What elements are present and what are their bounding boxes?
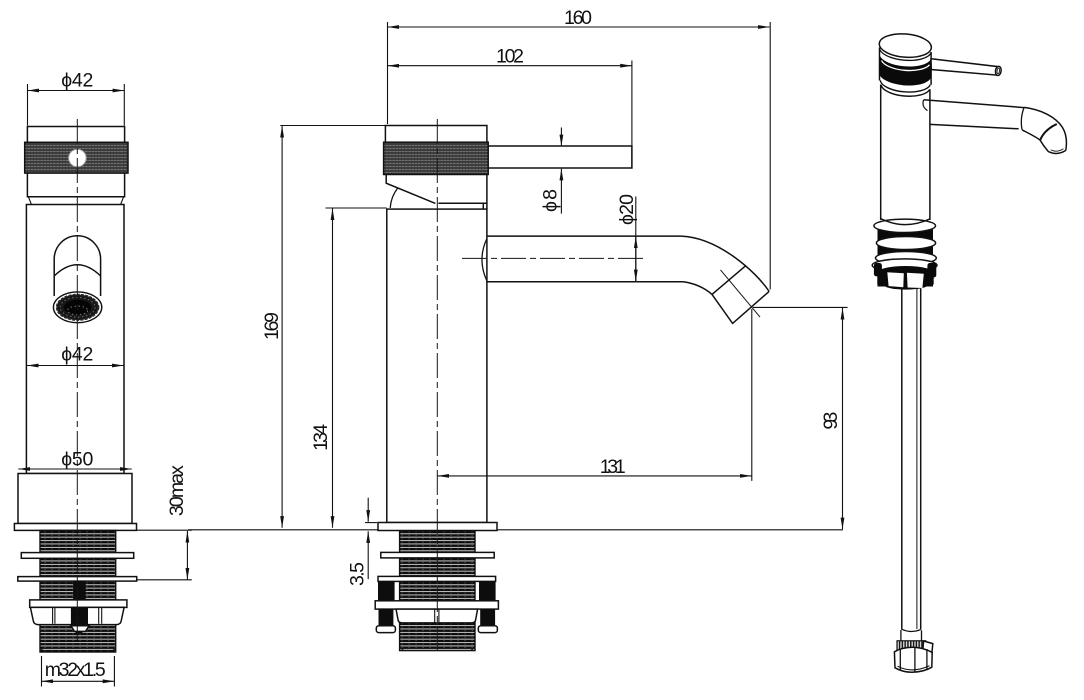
svg-text:m32x1.5: m32x1.5 bbox=[45, 659, 106, 681]
svg-text:ϕ20: ϕ20 bbox=[616, 194, 638, 225]
svg-text:ϕ42: ϕ42 bbox=[61, 69, 93, 91]
svg-text:160: 160 bbox=[564, 7, 592, 29]
svg-text:134: 134 bbox=[310, 424, 332, 451]
svg-text:131: 131 bbox=[600, 456, 626, 478]
svg-text:ϕ8: ϕ8 bbox=[540, 189, 562, 212]
svg-text:93: 93 bbox=[820, 412, 842, 430]
svg-text:3.5: 3.5 bbox=[347, 562, 369, 586]
svg-text:30max: 30max bbox=[166, 465, 188, 516]
svg-text:102: 102 bbox=[496, 45, 524, 67]
svg-text:169: 169 bbox=[261, 312, 283, 340]
svg-text:ϕ50: ϕ50 bbox=[61, 448, 93, 470]
svg-text:ϕ42: ϕ42 bbox=[61, 343, 93, 365]
